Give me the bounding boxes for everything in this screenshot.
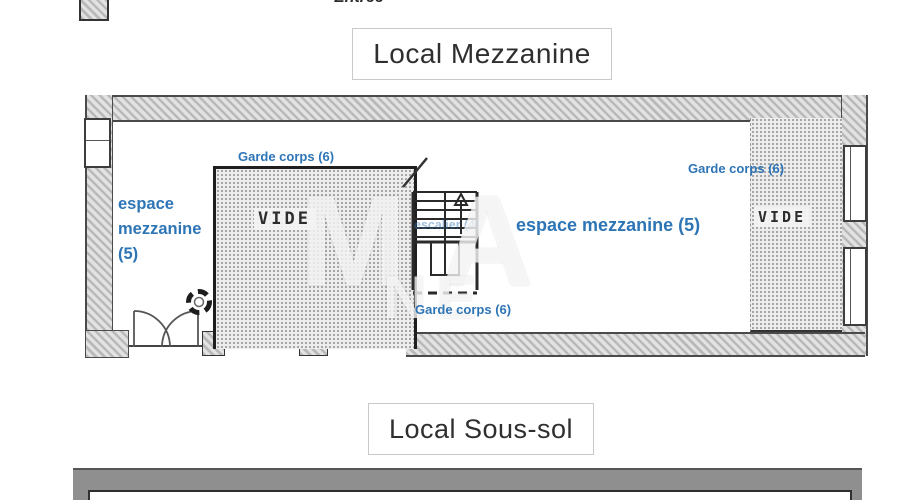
staircase — [411, 190, 483, 298]
soussol-title: Local Sous-sol — [368, 403, 594, 455]
espace-left-line3: (5) — [118, 242, 201, 267]
window-right-wall-lower — [843, 247, 867, 326]
escalier-label: escalier (4) — [414, 218, 479, 232]
mezzanine-wall-top — [85, 95, 865, 122]
window-pane-divider — [86, 140, 109, 141]
garde-corps-label-bottom: Garde corps (6) — [415, 302, 511, 317]
section-mark-icon — [400, 155, 430, 190]
mezzanine-bottom-left-block — [85, 330, 129, 358]
window-right-wall-upper — [843, 145, 867, 222]
upper-plan-pier-fragment — [79, 0, 109, 21]
espace-mezzanine-label-left: espace mezzanine (5) — [118, 192, 201, 266]
espace-left-line2: mezzanine — [118, 217, 201, 242]
window-pane-divider — [850, 147, 851, 220]
espace-mezzanine-label-center: espace mezzanine (5) — [516, 215, 700, 236]
window-left-wall — [84, 118, 111, 168]
vide-label-left: VIDE — [254, 208, 315, 230]
soussol-interior-fragment — [88, 490, 852, 500]
mezzanine-title: Local Mezzanine — [352, 28, 612, 80]
entree-label: Entrée — [334, 0, 384, 7]
window-pane-divider — [850, 249, 851, 324]
vide-label-right: VIDE — [754, 207, 810, 227]
garde-corps-label-top: Garde corps (6) — [238, 149, 334, 164]
soussol-title-text: Local Sous-sol — [389, 414, 573, 445]
vide-zone-left — [213, 166, 417, 349]
floor-plan-page: Entrée Local Mezzanine — [0, 0, 900, 500]
mezzanine-wall-bottom-right — [406, 332, 865, 357]
mezzanine-title-text: Local Mezzanine — [373, 38, 591, 70]
espace-left-line1: espace — [118, 192, 201, 217]
garde-corps-label-right: Garde corps (6) — [688, 161, 784, 176]
column-post-icon — [184, 287, 214, 317]
